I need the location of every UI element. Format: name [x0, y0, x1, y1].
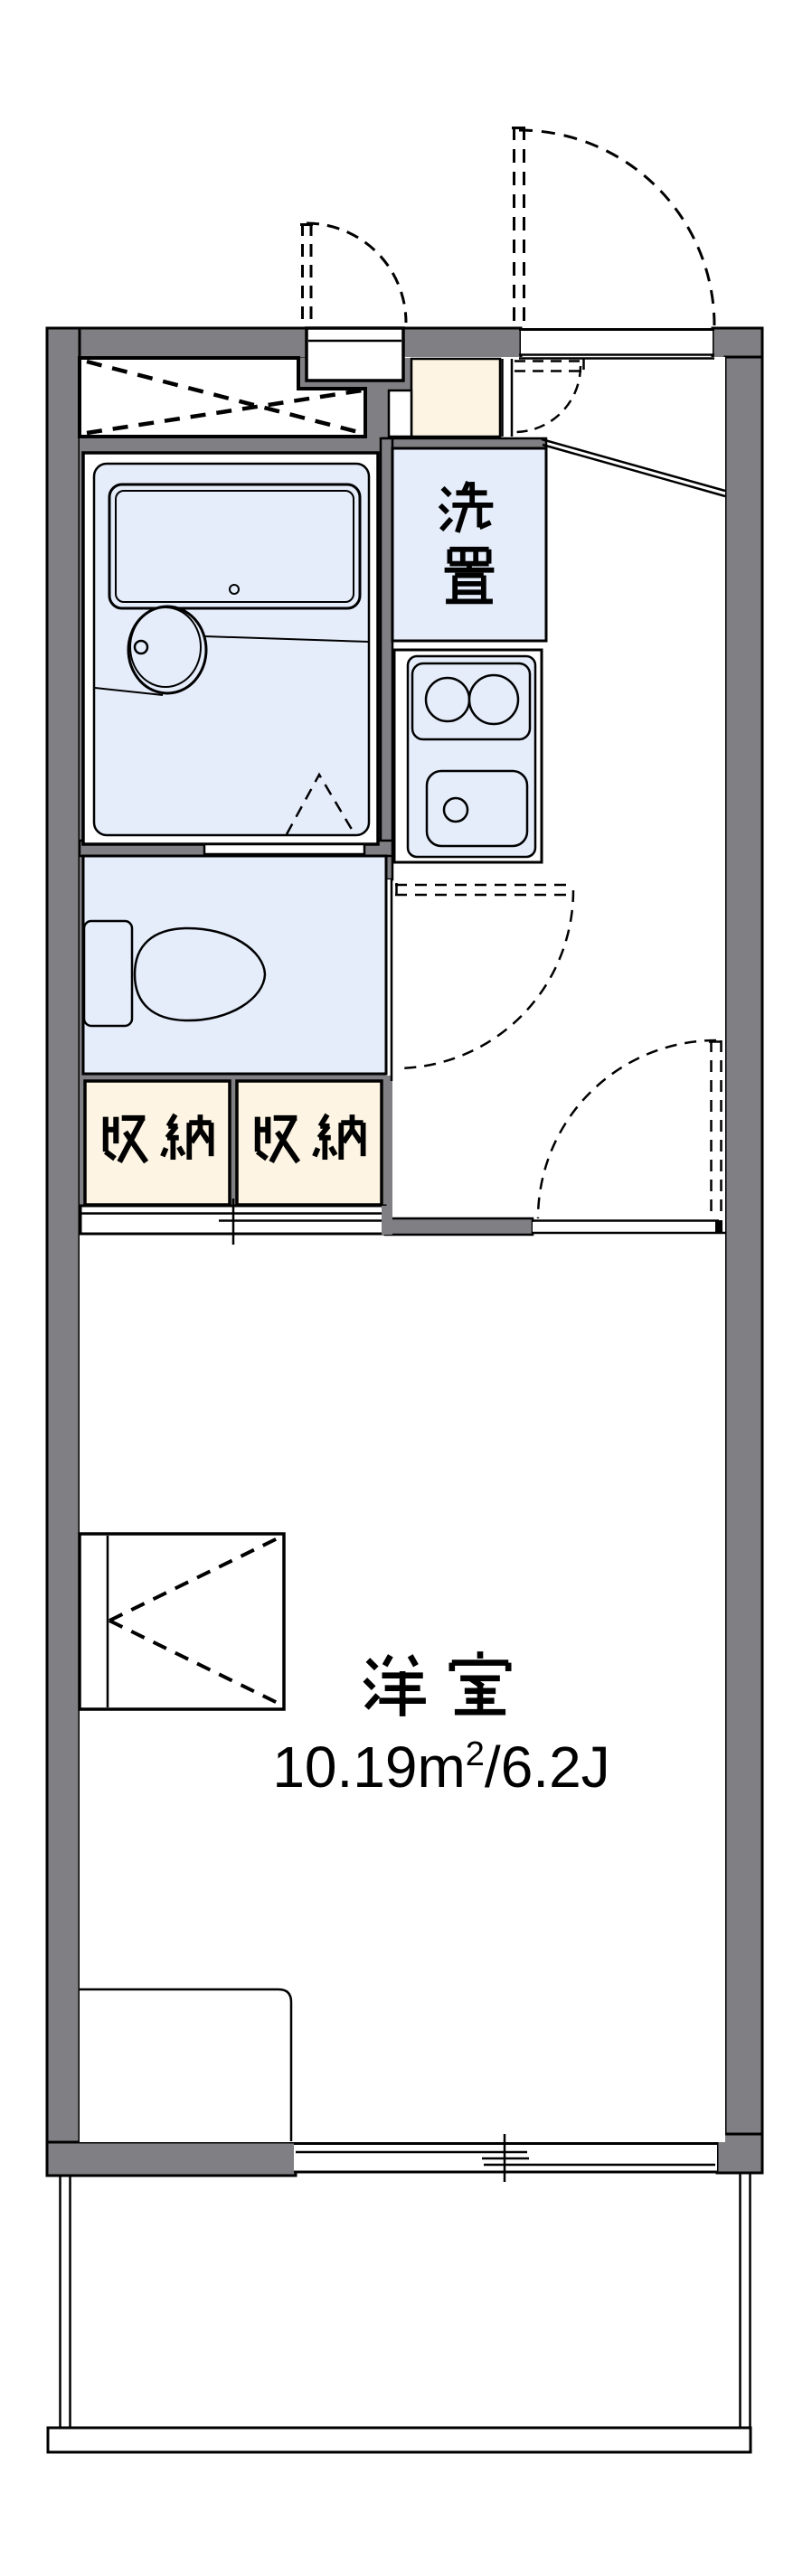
svg-text:10.19m2/6.2J: 10.19m2/6.2J — [272, 1735, 609, 1800]
